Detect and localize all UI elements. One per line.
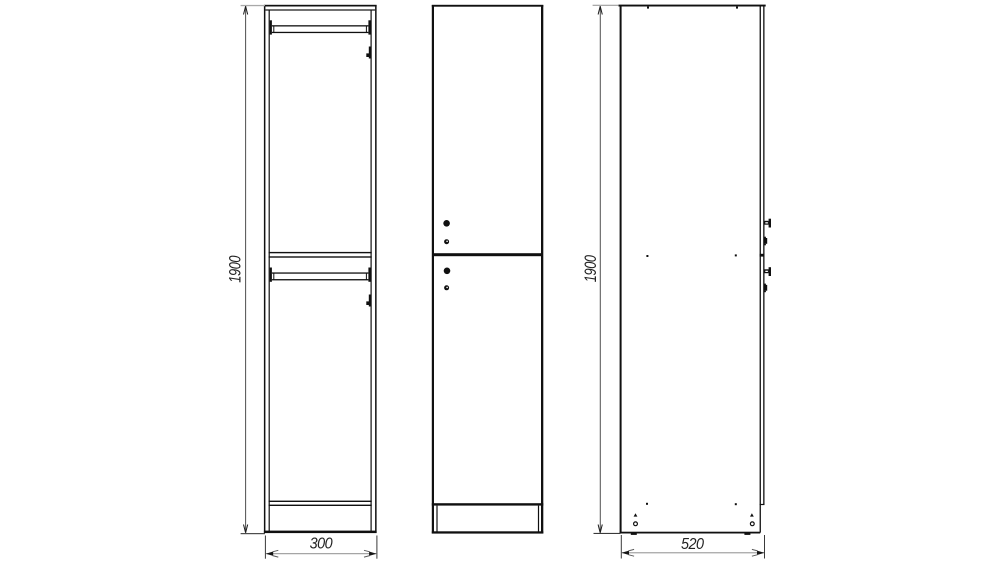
svg-text:520: 520 bbox=[681, 535, 704, 553]
svg-text:300: 300 bbox=[310, 535, 333, 553]
svg-text:1900: 1900 bbox=[227, 255, 245, 283]
svg-text:1900: 1900 bbox=[582, 254, 600, 282]
